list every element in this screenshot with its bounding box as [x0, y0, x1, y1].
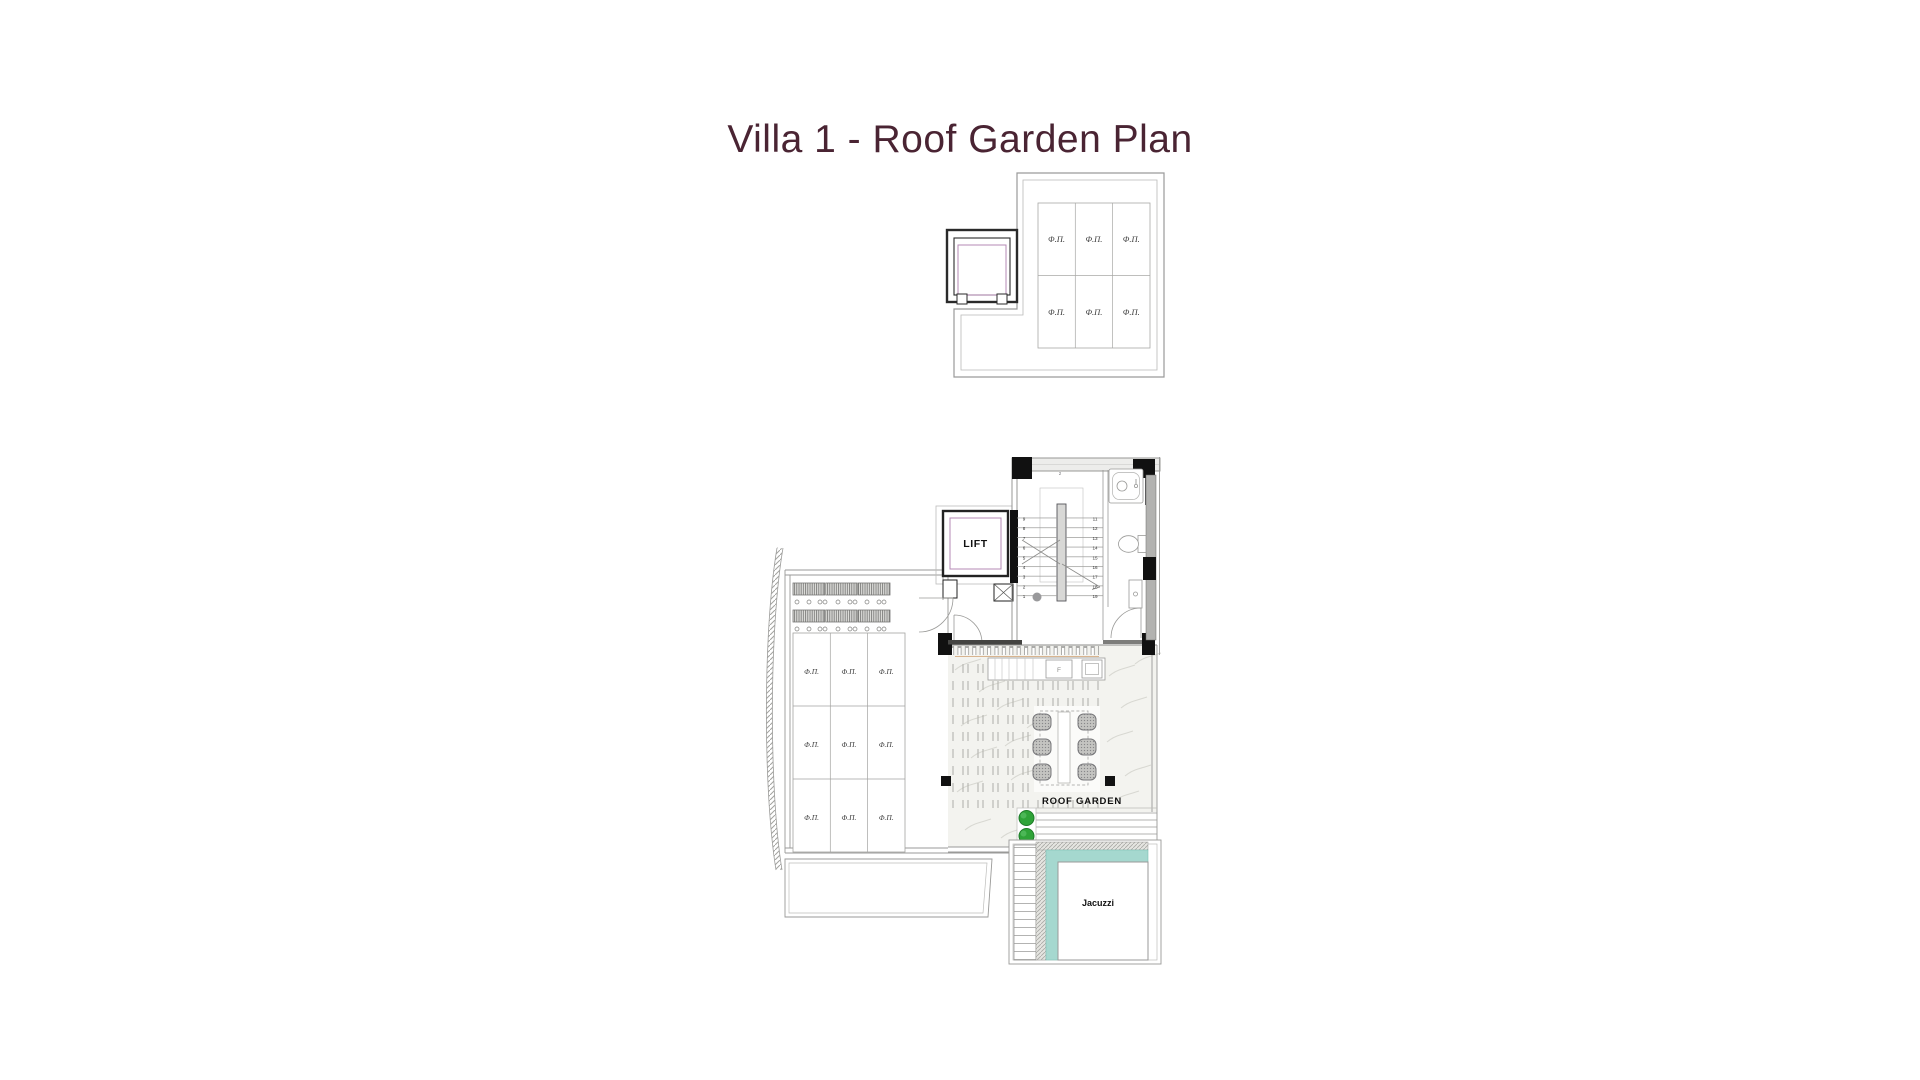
svg-text:8: 8	[1023, 526, 1026, 531]
solar-panel-label: Φ.Π.	[879, 667, 894, 676]
svg-text:9: 9	[1023, 517, 1026, 522]
garden-column	[1105, 776, 1115, 786]
svg-text:5: 5	[1023, 555, 1026, 560]
wc-toilet	[1119, 536, 1147, 553]
terrace-lower-extension	[785, 859, 992, 917]
lower-solar-panel-grid: Φ.Π. Φ.Π. Φ.Π. Φ.Π. Φ.Π. Φ.Π. Φ.Π. Φ.Π. …	[793, 633, 905, 852]
lift-door-jamb	[997, 294, 1007, 304]
wc-sink	[1109, 469, 1143, 503]
solar-panel-label: Φ.Π.	[842, 740, 857, 749]
jacuzzi-steps	[1014, 845, 1036, 960]
svg-text:4: 4	[1023, 565, 1026, 570]
stair-post	[1033, 593, 1042, 602]
plan-canvas: Villa 1 - Roof Garden Plan Φ.Π. Φ.Π. Φ.Π…	[0, 0, 1920, 1080]
svg-text:6: 6	[1023, 546, 1026, 551]
solar-panel-label: Φ.Π.	[1048, 307, 1065, 317]
svg-text:13: 13	[1092, 536, 1098, 541]
upper-lift-shaft	[947, 230, 1017, 304]
lift-door-jamb	[957, 294, 967, 304]
svg-text:17: 17	[1092, 575, 1098, 580]
svg-text:7: 7	[1023, 536, 1026, 541]
jacuzzi-surround-hatch	[1036, 844, 1046, 960]
solar-panel-label: Φ.Π.	[1123, 307, 1140, 317]
corridor-wall	[948, 640, 1022, 645]
jacuzzi-label: Jacuzzi	[1082, 898, 1114, 908]
stair-step-numbers-right: 11 12 13 14 15 16 17 18 19	[1092, 517, 1098, 600]
jacuzzi-pool	[1058, 862, 1148, 960]
solar-panel-label: Φ.Π.	[1086, 307, 1103, 317]
pergola-beam-ends	[951, 646, 1099, 655]
upper-solar-panel-grid: Φ.Π. Φ.Π. Φ.Π. Φ.Π. Φ.Π. Φ.Π.	[1038, 203, 1150, 348]
stair-step-numbers-left: 9 8 7 6 5 4 3 2 1	[1023, 517, 1026, 600]
solar-panel-label: Φ.Π.	[804, 813, 819, 822]
svg-text:15: 15	[1092, 555, 1098, 560]
svg-text:18: 18	[1092, 584, 1098, 589]
garden-table	[1058, 712, 1070, 783]
wc-room	[1103, 457, 1160, 655]
svg-text:3: 3	[1023, 575, 1026, 580]
solar-panel-label: Φ.Π.	[804, 740, 819, 749]
upper-roof-plan: Φ.Π. Φ.Π. Φ.Π. Φ.Π. Φ.Π. Φ.Π.	[945, 170, 1167, 380]
svg-text:19: 19	[1092, 594, 1098, 599]
solar-panel-label: Φ.Π.	[879, 813, 894, 822]
solar-panel-label: Φ.Π.	[842, 813, 857, 822]
curved-facade-edge	[766, 548, 783, 870]
roof-garden-floor-plan: Φ.Π. Φ.Π. Φ.Π. Φ.Π. Φ.Π. Φ.Π. Φ.Π. Φ.Π. …	[765, 440, 1167, 972]
svg-text:12: 12	[1092, 526, 1098, 531]
jacuzzi-surround-hatch	[1036, 842, 1148, 850]
svg-text:1: 1	[1023, 594, 1026, 599]
stairs-center-wall	[1057, 504, 1066, 601]
svg-text:14: 14	[1092, 546, 1098, 551]
solar-panel-label: Φ.Π.	[1123, 234, 1140, 244]
garden-column	[941, 776, 951, 786]
core-wall	[1010, 510, 1018, 583]
jacuzzi-terrace: Jacuzzi	[1009, 840, 1161, 964]
stair-top-marker: 2	[1059, 471, 1062, 476]
solar-panel-label: Φ.Π.	[842, 667, 857, 676]
fridge-label: F	[1057, 667, 1061, 674]
lift-label: LIFT	[963, 538, 988, 550]
page-title: Villa 1 - Roof Garden Plan	[0, 118, 1920, 162]
louver-strip-row	[793, 583, 890, 622]
wc-cabinet	[1129, 580, 1142, 608]
wc-column	[1143, 557, 1156, 580]
svg-text:2: 2	[1023, 584, 1026, 589]
roof-garden-label: ROOF GARDEN	[1042, 796, 1122, 807]
lift-shaft-vent-box	[994, 584, 1013, 601]
solar-panel-label: Φ.Π.	[1048, 234, 1065, 244]
outdoor-kitchen-counter: F	[988, 658, 1105, 680]
lift-door-jamb	[943, 580, 957, 598]
wc-door	[1111, 608, 1141, 638]
solar-panel-label: Φ.Π.	[804, 667, 819, 676]
counter-sink	[1082, 660, 1102, 678]
corridor-wall	[1103, 640, 1142, 644]
svg-text:16: 16	[1092, 565, 1098, 570]
svg-text:11: 11	[1093, 517, 1098, 522]
roof-garden-area: F	[941, 645, 1161, 852]
core-column	[1012, 457, 1032, 479]
solar-panel-label: Φ.Π.	[1086, 234, 1103, 244]
garden-dining-set	[1033, 706, 1100, 792]
solar-panel-label: Φ.Π.	[879, 740, 894, 749]
tree-icon	[1019, 811, 1034, 826]
